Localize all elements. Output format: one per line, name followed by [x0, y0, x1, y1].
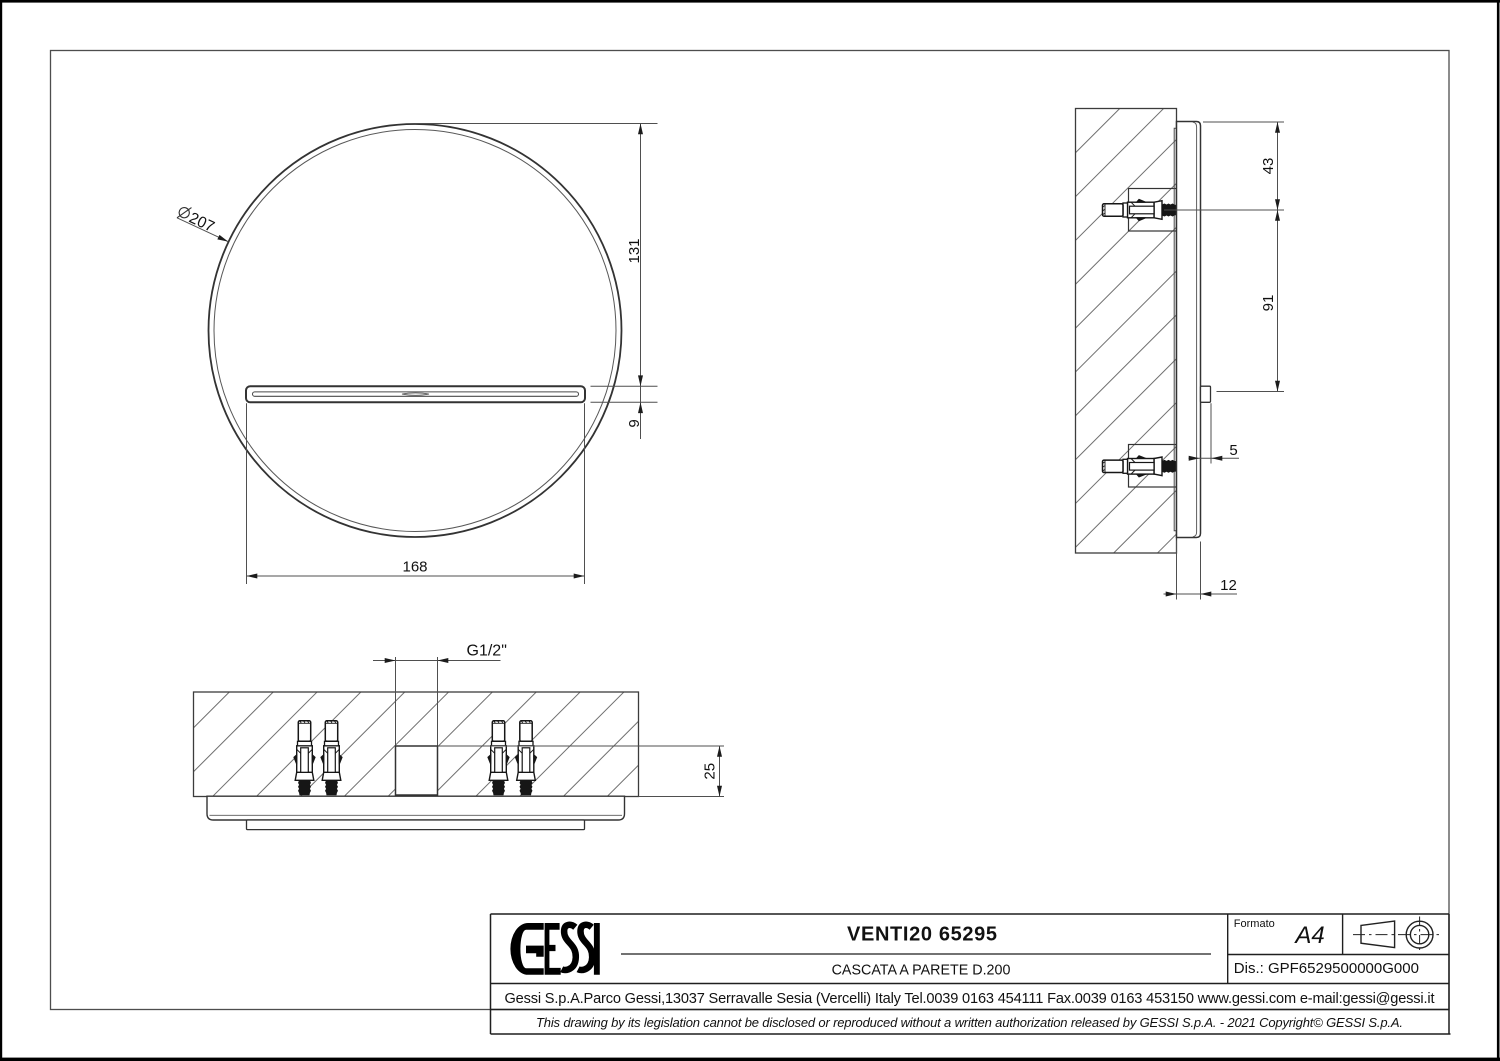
svg-text:131: 131 [626, 238, 643, 263]
svg-text:43: 43 [1260, 158, 1277, 175]
svg-text:5: 5 [1229, 442, 1237, 459]
svg-text:CASCATA A PARETE D.200: CASCATA A PARETE D.200 [832, 963, 1011, 979]
svg-text:25: 25 [702, 763, 719, 780]
svg-text:This drawing by its legislatio: This drawing by its legislation cannot b… [536, 1015, 1403, 1030]
svg-text:G1/2": G1/2" [467, 643, 507, 660]
svg-text:9: 9 [626, 419, 643, 427]
svg-text:Dis.: GPF6529500000G000: Dis.: GPF6529500000G000 [1234, 960, 1419, 977]
svg-text:Gessi S.p.A.Parco Gessi,13037: Gessi S.p.A.Parco Gessi,13037 Serravalle… [505, 991, 1435, 1007]
svg-text:91: 91 [1260, 295, 1277, 312]
svg-text:A4: A4 [1293, 922, 1324, 949]
svg-text:VENTI20 65295: VENTI20 65295 [847, 924, 997, 946]
svg-text:168: 168 [402, 559, 427, 576]
svg-text:Formato: Formato [1234, 918, 1275, 930]
svg-text:12: 12 [1220, 577, 1237, 594]
